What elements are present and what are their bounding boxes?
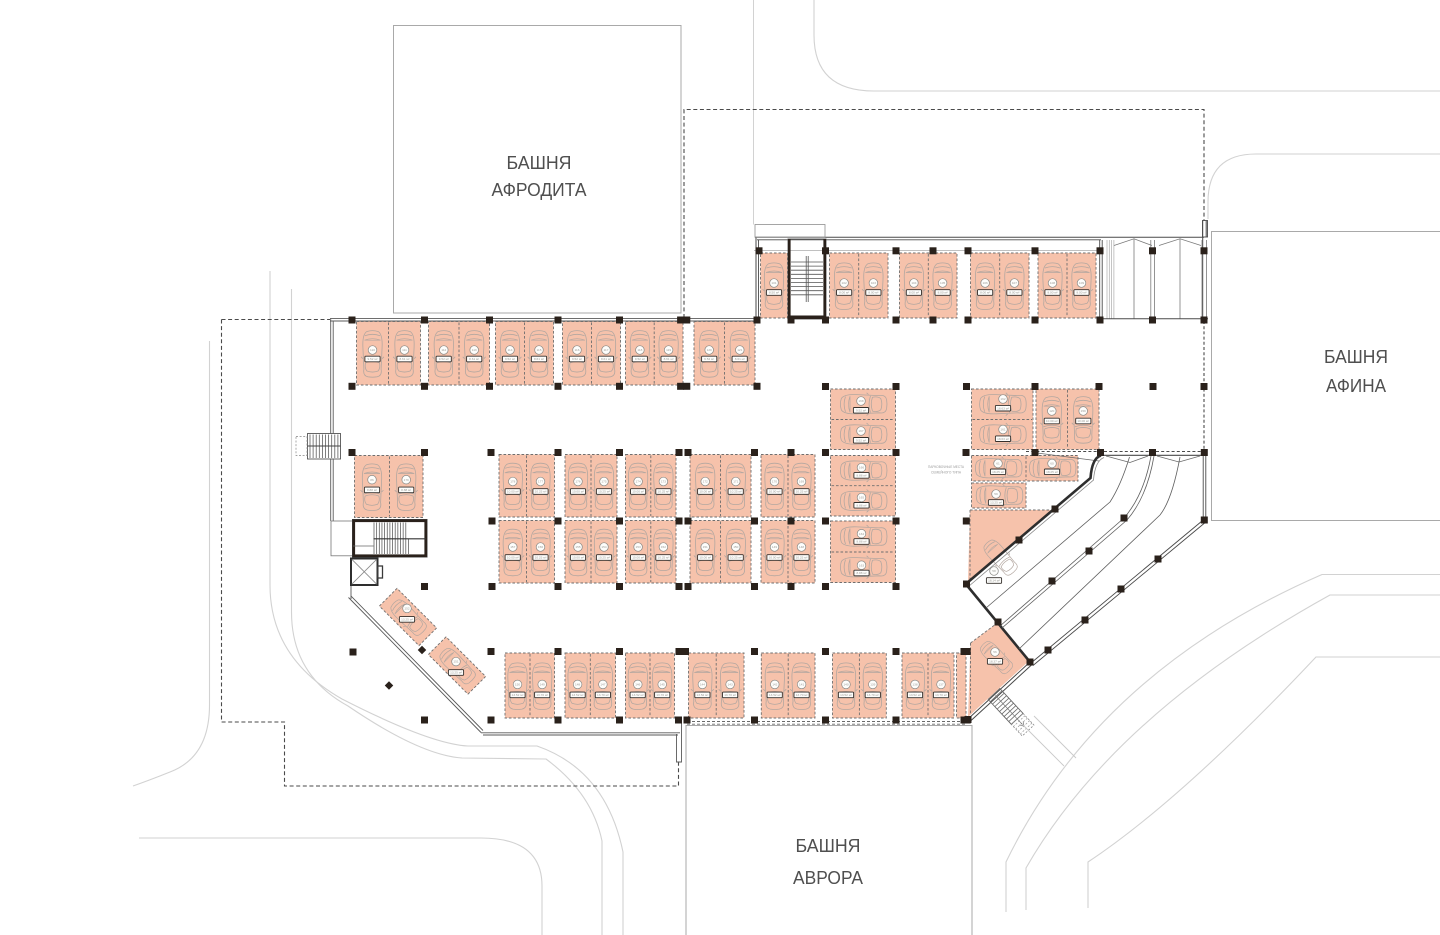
svg-text:БАШНЯ: БАШНЯ bbox=[507, 153, 572, 173]
svg-text:144: 144 bbox=[700, 683, 705, 687]
svg-text:172: 172 bbox=[703, 480, 708, 484]
svg-text:143: 143 bbox=[728, 683, 733, 687]
svg-text:13.52 м²: 13.52 м² bbox=[512, 693, 524, 697]
svg-text:18.25 м²: 18.25 м² bbox=[1046, 470, 1058, 474]
svg-text:159: 159 bbox=[1081, 409, 1086, 413]
svg-text:154: 154 bbox=[601, 545, 606, 549]
svg-text:8.00 м²: 8.00 м² bbox=[1047, 291, 1057, 295]
svg-text:8.61 м²: 8.61 м² bbox=[664, 357, 674, 361]
svg-text:161: 161 bbox=[1000, 428, 1005, 432]
svg-text:8.61 м²: 8.61 м² bbox=[469, 357, 479, 361]
svg-text:117: 117 bbox=[604, 348, 609, 352]
svg-text:145: 145 bbox=[660, 683, 665, 687]
svg-text:112: 112 bbox=[441, 348, 446, 352]
svg-text:13.52 м²: 13.52 м² bbox=[840, 693, 852, 697]
svg-text:18.63 м²: 18.63 м² bbox=[997, 406, 1009, 410]
svg-text:10.00 м²: 10.00 м² bbox=[572, 490, 584, 494]
svg-text:13.52 м²: 13.52 м² bbox=[697, 693, 709, 697]
svg-text:8.88 м²: 8.88 м² bbox=[856, 571, 866, 575]
svg-text:13.52 м²: 13.52 м² bbox=[632, 693, 644, 697]
svg-text:10.00 м²: 10.00 м² bbox=[699, 556, 711, 560]
svg-text:151: 151 bbox=[453, 660, 458, 664]
svg-text:119: 119 bbox=[666, 348, 671, 352]
svg-text:9.52 м²: 9.52 м² bbox=[635, 357, 645, 361]
svg-text:86: 86 bbox=[370, 478, 374, 482]
svg-text:13.25 м²: 13.25 м² bbox=[450, 671, 462, 675]
svg-text:146: 146 bbox=[635, 683, 640, 687]
svg-text:10.00 м²: 10.00 м² bbox=[572, 556, 584, 560]
svg-text:10.00 м²: 10.00 м² bbox=[632, 490, 644, 494]
svg-text:114: 114 bbox=[508, 348, 513, 352]
svg-text:178: 178 bbox=[510, 480, 515, 484]
svg-text:118: 118 bbox=[637, 348, 642, 352]
svg-text:177: 177 bbox=[538, 480, 543, 484]
svg-text:137: 137 bbox=[938, 683, 943, 687]
svg-text:120: 120 bbox=[1049, 409, 1054, 413]
svg-text:139: 139 bbox=[870, 683, 875, 687]
svg-text:10.25 м²: 10.25 м² bbox=[796, 556, 808, 560]
svg-text:179: 179 bbox=[404, 478, 409, 482]
svg-text:13.52 м²: 13.52 м² bbox=[909, 693, 921, 697]
svg-text:175: 175 bbox=[601, 480, 606, 484]
svg-text:164: 164 bbox=[859, 532, 864, 536]
svg-text:18.25 м²: 18.25 м² bbox=[992, 470, 1004, 474]
svg-text:61: 61 bbox=[996, 462, 1000, 466]
svg-text:10.25 м²: 10.25 м² bbox=[535, 490, 547, 494]
svg-text:8.00 м²: 8.00 м² bbox=[980, 291, 990, 295]
svg-text:9.52 м²: 9.52 м² bbox=[856, 439, 866, 443]
svg-text:13.70 м²: 13.70 м² bbox=[867, 693, 879, 697]
svg-text:13.70 м²: 13.70 м² bbox=[536, 693, 548, 697]
svg-text:10.25 м²: 10.25 м² bbox=[730, 556, 742, 560]
svg-text:10.00 м²: 10.00 м² bbox=[1077, 419, 1089, 423]
svg-text:СЕМЕЙНОГО ТИПА: СЕМЕЙНОГО ТИПА bbox=[931, 471, 962, 475]
svg-text:8.88 м²: 8.88 м² bbox=[856, 504, 866, 508]
svg-text:10.00 м²: 10.00 м² bbox=[699, 490, 711, 494]
svg-text:8.50 м²: 8.50 м² bbox=[769, 291, 779, 295]
svg-text:103: 103 bbox=[871, 281, 876, 285]
svg-text:13.70 м²: 13.70 м² bbox=[724, 693, 736, 697]
svg-text:8.00 м²: 8.00 м² bbox=[938, 291, 948, 295]
svg-text:173: 173 bbox=[661, 480, 666, 484]
svg-text:13.25 м²: 13.25 м² bbox=[990, 501, 1002, 505]
svg-text:106: 106 bbox=[983, 281, 988, 285]
svg-text:107: 107 bbox=[1012, 281, 1017, 285]
svg-text:166: 166 bbox=[859, 466, 864, 470]
svg-text:13.52 м²: 13.52 м² bbox=[572, 693, 584, 697]
svg-text:165: 165 bbox=[859, 496, 864, 500]
svg-text:142: 142 bbox=[772, 683, 777, 687]
svg-text:9.52 м²: 9.52 м² bbox=[367, 357, 377, 361]
svg-text:141: 141 bbox=[799, 683, 804, 687]
svg-text:150: 150 bbox=[733, 545, 738, 549]
svg-text:18.14 м²: 18.14 м² bbox=[988, 579, 1000, 583]
svg-text:8.88 м²: 8.88 м² bbox=[856, 540, 866, 544]
svg-text:8.61 м²: 8.61 м² bbox=[399, 357, 409, 361]
svg-text:10.00 м²: 10.00 м² bbox=[769, 556, 781, 560]
svg-text:101: 101 bbox=[771, 281, 776, 285]
svg-text:10.00 м²: 10.00 м² bbox=[507, 490, 519, 494]
svg-text:138: 138 bbox=[912, 683, 917, 687]
svg-text:111: 111 bbox=[402, 348, 407, 352]
svg-text:13.25 м²: 13.25 м² bbox=[401, 618, 413, 622]
svg-text:13.70 м²: 13.70 м² bbox=[935, 693, 947, 697]
svg-text:8.00 м²: 8.00 м² bbox=[868, 291, 878, 295]
svg-text:157: 157 bbox=[510, 545, 515, 549]
svg-text:8.00 м²: 8.00 м² bbox=[839, 291, 849, 295]
svg-text:13.70 м²: 13.70 м² bbox=[597, 693, 609, 697]
svg-text:8.00 м²: 8.00 м² bbox=[1076, 291, 1086, 295]
svg-text:147: 147 bbox=[600, 683, 605, 687]
svg-text:148: 148 bbox=[799, 545, 804, 549]
svg-text:109: 109 bbox=[1079, 281, 1084, 285]
svg-text:108: 108 bbox=[1050, 281, 1055, 285]
svg-text:150: 150 bbox=[515, 683, 520, 687]
svg-text:10.00 м²: 10.00 м² bbox=[769, 490, 781, 494]
svg-text:БАШНЯ: БАШНЯ bbox=[796, 836, 861, 856]
svg-text:13.70 м²: 13.70 м² bbox=[656, 693, 668, 697]
svg-text:102: 102 bbox=[842, 281, 847, 285]
svg-text:8.00 м²: 8.00 м² bbox=[909, 291, 919, 295]
svg-text:10.25 м²: 10.25 м² bbox=[658, 556, 670, 560]
svg-text:60: 60 bbox=[1050, 462, 1054, 466]
svg-text:115: 115 bbox=[537, 348, 542, 352]
svg-text:10.00 м²: 10.00 м² bbox=[1046, 419, 1058, 423]
svg-text:140: 140 bbox=[843, 683, 848, 687]
svg-text:9.52 м²: 9.52 м² bbox=[439, 357, 449, 361]
svg-text:18.63 м²: 18.63 м² bbox=[997, 437, 1009, 441]
svg-text:148: 148 bbox=[575, 683, 580, 687]
svg-text:10.25 м²: 10.25 м² bbox=[796, 490, 808, 494]
svg-text:13.70 м²: 13.70 м² bbox=[796, 693, 808, 697]
svg-text:9.52 м²: 9.52 м² bbox=[572, 357, 582, 361]
svg-text:59: 59 bbox=[994, 492, 998, 496]
svg-text:167: 167 bbox=[858, 429, 863, 433]
svg-text:121: 121 bbox=[737, 348, 742, 352]
svg-text:9.52 м²: 9.52 м² bbox=[505, 357, 515, 361]
svg-text:18.37 м²: 18.37 м² bbox=[989, 660, 1001, 664]
svg-text:155: 155 bbox=[575, 545, 580, 549]
svg-text:156: 156 bbox=[538, 545, 543, 549]
svg-text:8.00 м²: 8.00 м² bbox=[1009, 291, 1019, 295]
svg-text:153: 153 bbox=[636, 545, 641, 549]
svg-text:8.88 м²: 8.88 м² bbox=[401, 488, 411, 492]
svg-text:169: 169 bbox=[799, 480, 804, 484]
svg-text:113: 113 bbox=[472, 348, 477, 352]
svg-text:10.25 м²: 10.25 м² bbox=[598, 490, 610, 494]
svg-text:АВРОРА: АВРОРА bbox=[793, 868, 863, 888]
svg-text:8.61 м²: 8.61 м² bbox=[534, 357, 544, 361]
svg-text:116: 116 bbox=[575, 348, 580, 352]
svg-text:174: 174 bbox=[636, 480, 641, 484]
svg-text:151: 151 bbox=[703, 545, 708, 549]
svg-text:105: 105 bbox=[940, 281, 945, 285]
svg-text:10.00 м²: 10.00 м² bbox=[507, 556, 519, 560]
svg-text:171: 171 bbox=[733, 480, 738, 484]
svg-text:9.52 м²: 9.52 м² bbox=[704, 357, 714, 361]
svg-text:149: 149 bbox=[540, 683, 545, 687]
svg-text:АФРОДИТА: АФРОДИТА bbox=[492, 180, 587, 200]
svg-text:104: 104 bbox=[911, 281, 916, 285]
svg-text:110: 110 bbox=[370, 348, 375, 352]
svg-text:ПАРКОВОЧНЫЕ МЕСТА: ПАРКОВОЧНЫЕ МЕСТА bbox=[928, 465, 965, 469]
svg-text:9.52 м²: 9.52 м² bbox=[856, 409, 866, 413]
svg-text:8.61 м²: 8.61 м² bbox=[735, 357, 745, 361]
svg-text:8.88 м²: 8.88 м² bbox=[367, 488, 377, 492]
svg-text:170: 170 bbox=[772, 480, 777, 484]
svg-text:120: 120 bbox=[707, 348, 712, 352]
svg-text:БАШНЯ: БАШНЯ bbox=[1324, 347, 1388, 367]
svg-text:8.61 м²: 8.61 м² bbox=[601, 357, 611, 361]
svg-text:10.00 м²: 10.00 м² bbox=[632, 556, 644, 560]
svg-text:АФИНА: АФИНА bbox=[1326, 376, 1386, 396]
svg-text:176: 176 bbox=[575, 480, 580, 484]
svg-text:149: 149 bbox=[772, 545, 777, 549]
svg-text:56: 56 bbox=[993, 650, 997, 654]
svg-text:10.25 м²: 10.25 м² bbox=[730, 490, 742, 494]
svg-text:58: 58 bbox=[992, 569, 996, 573]
svg-text:10.25 м²: 10.25 м² bbox=[658, 490, 670, 494]
svg-text:8.88 м²: 8.88 м² bbox=[856, 474, 866, 478]
svg-text:152: 152 bbox=[404, 607, 409, 611]
svg-text:152: 152 bbox=[661, 545, 666, 549]
svg-text:162: 162 bbox=[1000, 397, 1005, 401]
svg-text:10.25 м²: 10.25 м² bbox=[535, 556, 547, 560]
svg-text:10.25 м²: 10.25 м² bbox=[598, 556, 610, 560]
svg-text:13.52 м²: 13.52 м² bbox=[769, 693, 781, 697]
svg-text:163: 163 bbox=[859, 563, 864, 567]
svg-text:168: 168 bbox=[858, 399, 863, 403]
